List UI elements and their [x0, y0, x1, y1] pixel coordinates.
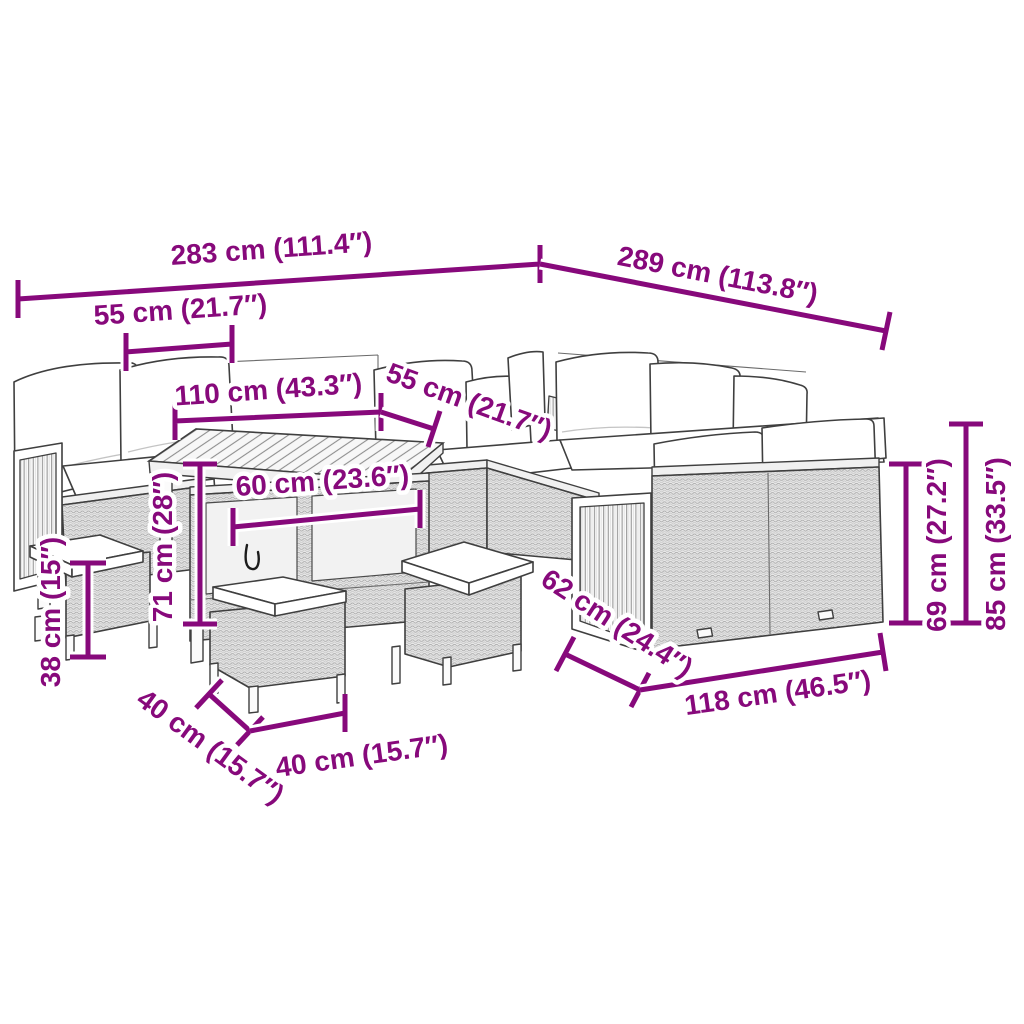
- diagram-svg: 283 cm (111.4″) 289 cm (113.8″) 55 cm (2…: [0, 0, 1024, 1024]
- dimension-diagram: 283 cm (111.4″) 289 cm (113.8″) 55 cm (2…: [0, 0, 1024, 1024]
- dim-label-overall-width-left: 283 cm (111.4″): [170, 226, 373, 271]
- dim-label-stool-height: 38 cm (15″): [35, 537, 66, 687]
- right-sofa-back-panel: [652, 467, 883, 649]
- dim-total-height: [949, 424, 983, 623]
- dim-label-total-height: 85 cm (33.5″): [980, 457, 1011, 631]
- dim-stool-width: [250, 694, 345, 732]
- dim-label-table-height: 71 cm (28″): [147, 472, 178, 622]
- stool-3: [392, 542, 533, 685]
- stool-2: [210, 577, 346, 713]
- dim-back-height: [889, 464, 923, 623]
- dim-label-back-height: 69 cm (27.2″): [921, 458, 952, 632]
- dim-label-stool-width: 40 cm (15.7″): [273, 728, 449, 783]
